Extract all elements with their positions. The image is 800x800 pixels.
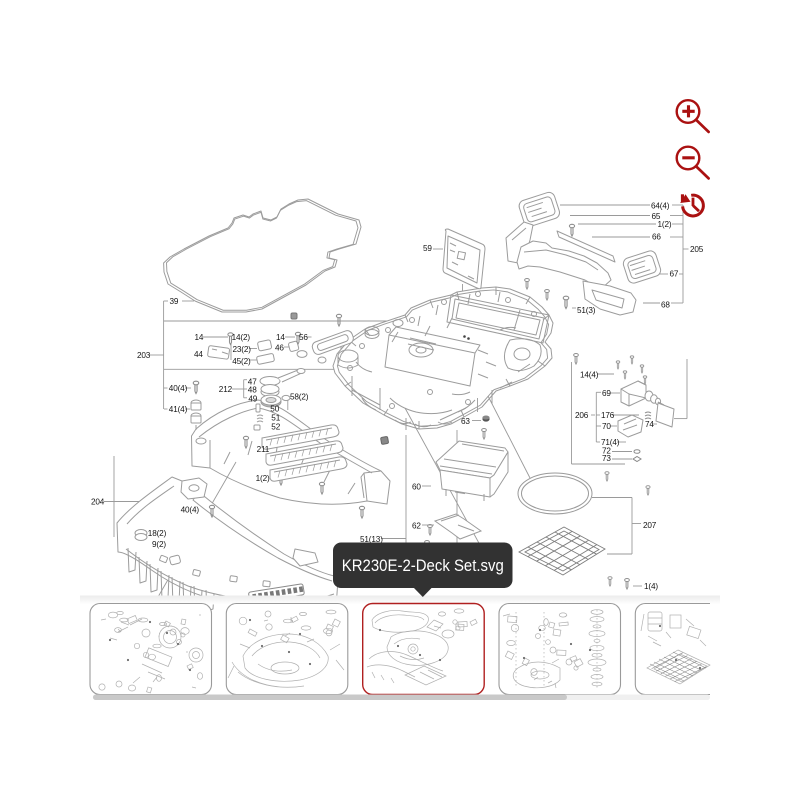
svg-text:39: 39 (170, 297, 179, 306)
svg-text:14(2): 14(2) (232, 333, 251, 342)
svg-text:60: 60 (412, 483, 421, 492)
svg-text:41(4): 41(4) (169, 405, 188, 414)
svg-text:46: 46 (275, 344, 284, 353)
svg-text:207: 207 (643, 521, 657, 530)
svg-text:KR230E-2-Deck Set.svg: KR230E-2-Deck Set.svg (342, 556, 504, 575)
svg-text:14: 14 (276, 333, 285, 342)
svg-text:69: 69 (602, 389, 611, 398)
svg-text:40(4): 40(4) (181, 506, 200, 515)
svg-text:205: 205 (690, 245, 704, 254)
svg-text:67: 67 (670, 270, 679, 279)
svg-text:62: 62 (412, 522, 421, 531)
svg-text:64(4): 64(4) (651, 202, 670, 211)
svg-text:14(4): 14(4) (580, 371, 599, 380)
svg-text:51: 51 (271, 414, 280, 423)
svg-text:49: 49 (248, 395, 257, 404)
svg-text:18(2): 18(2) (148, 529, 167, 538)
svg-text:212: 212 (219, 385, 233, 394)
svg-text:51(3): 51(3) (577, 306, 596, 315)
svg-text:68: 68 (661, 301, 670, 310)
svg-text:70: 70 (602, 422, 611, 431)
svg-text:1(2): 1(2) (658, 220, 672, 229)
svg-text:73: 73 (602, 454, 611, 463)
svg-text:50: 50 (270, 405, 279, 414)
svg-text:44: 44 (194, 350, 203, 359)
svg-text:206: 206 (575, 411, 589, 420)
svg-text:1(2): 1(2) (256, 474, 270, 483)
svg-text:14: 14 (195, 333, 204, 342)
svg-text:176: 176 (601, 411, 615, 420)
svg-text:63: 63 (461, 417, 470, 426)
svg-text:56: 56 (299, 333, 308, 342)
svg-text:40(4): 40(4) (169, 384, 188, 393)
svg-text:23(2): 23(2) (233, 345, 252, 354)
svg-text:58(2): 58(2) (290, 393, 309, 402)
svg-text:203: 203 (137, 351, 151, 360)
svg-text:211: 211 (257, 445, 270, 454)
svg-text:52: 52 (271, 423, 280, 432)
svg-text:59: 59 (423, 244, 432, 253)
svg-text:74: 74 (645, 420, 654, 429)
svg-text:204: 204 (91, 498, 105, 507)
svg-text:48: 48 (248, 386, 257, 395)
svg-text:1(4): 1(4) (644, 582, 658, 591)
svg-text:9(2): 9(2) (152, 540, 166, 549)
svg-text:45(2): 45(2) (232, 357, 251, 366)
svg-text:66: 66 (652, 233, 661, 242)
